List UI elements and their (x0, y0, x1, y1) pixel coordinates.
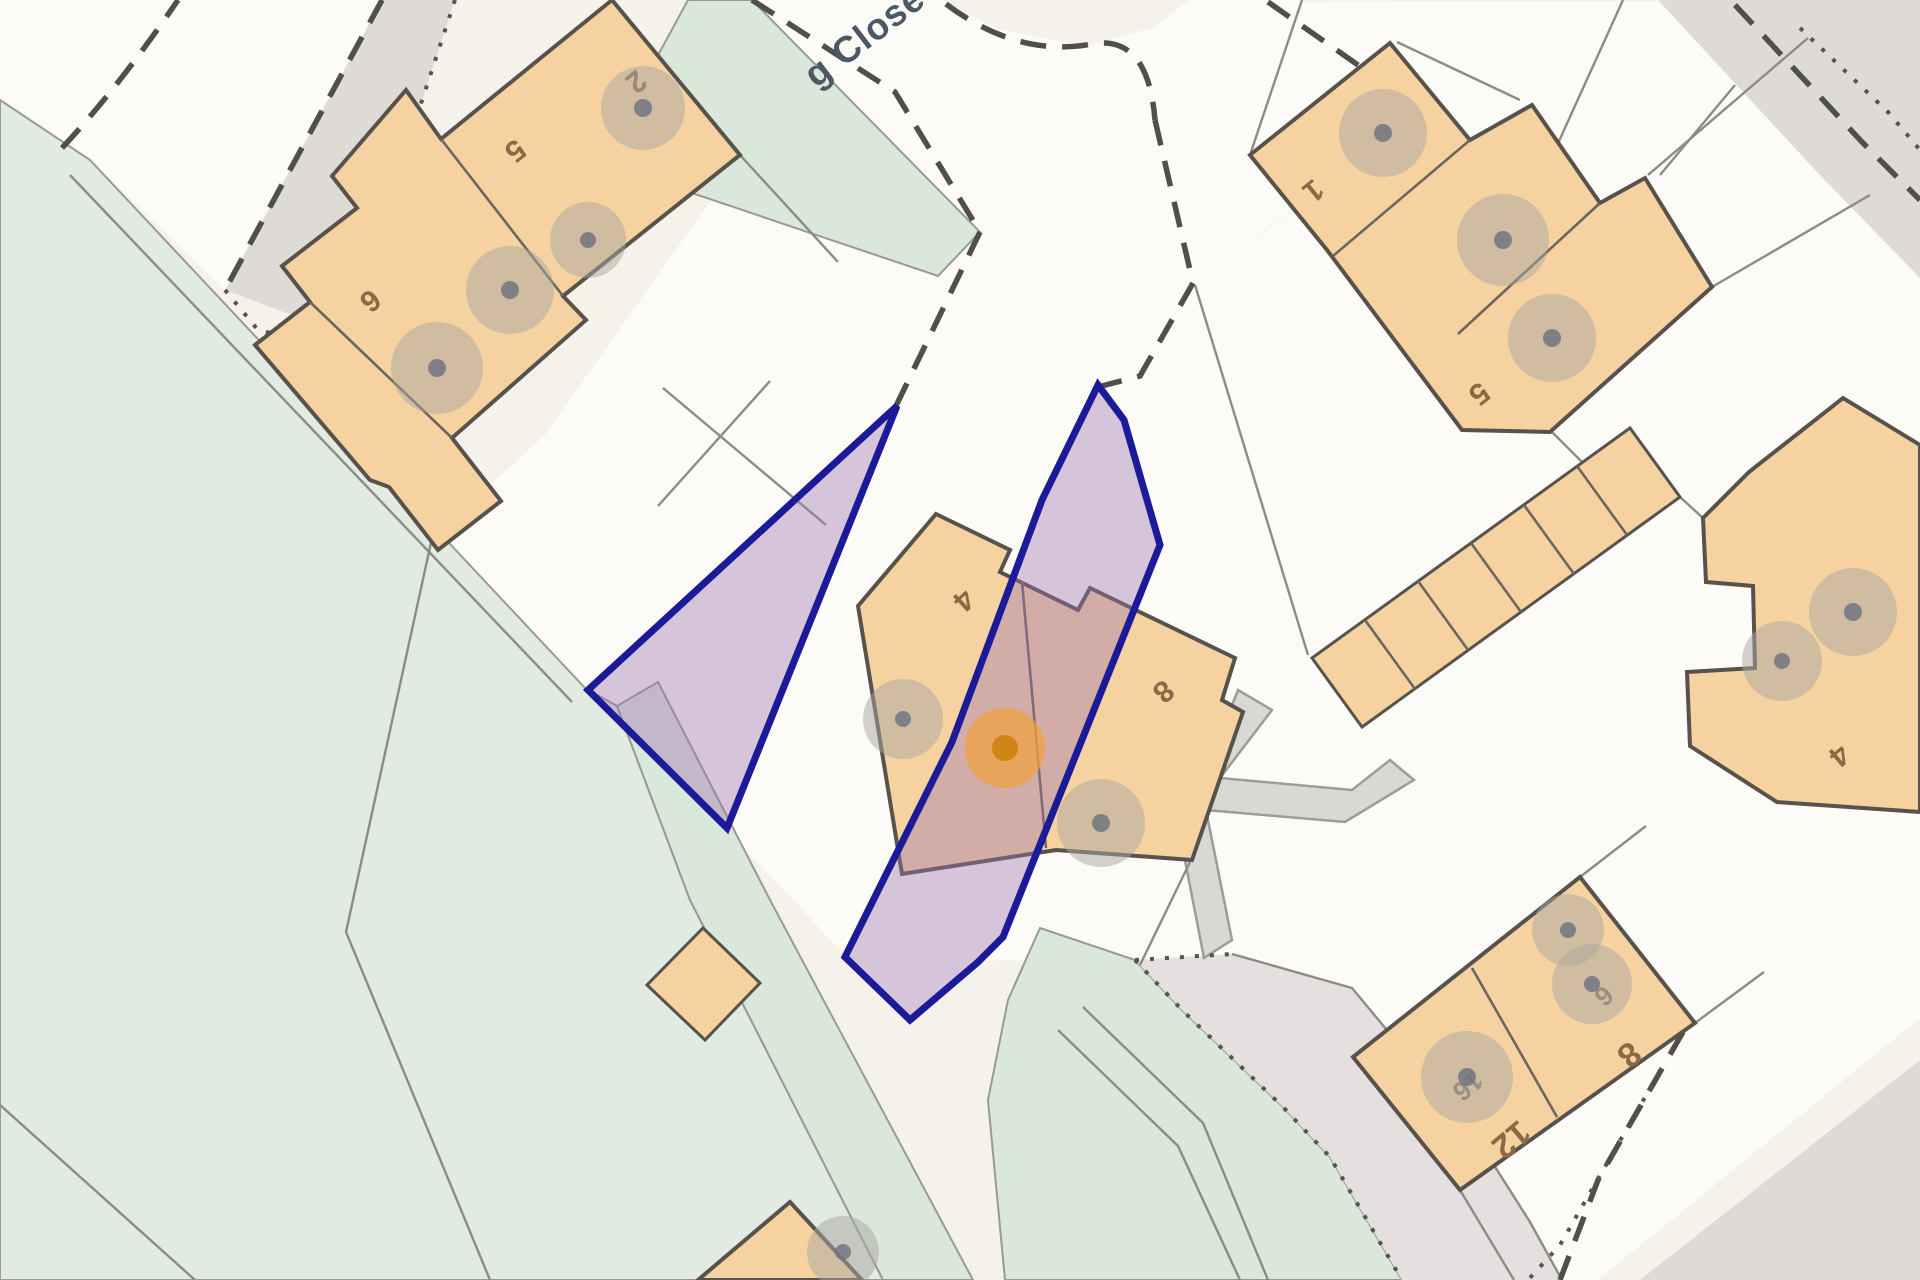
map-canvas[interactable]: 2 5 6 1 5 4 8 4 12 8 6 16 (0, 0, 1920, 1280)
map-viewport: 2 5 6 1 5 4 8 4 12 8 6 16 (0, 0, 1920, 1280)
tree-icon (601, 66, 685, 150)
tree-icon (466, 246, 554, 334)
tree-icon (1421, 1031, 1513, 1123)
tree-icon (1809, 568, 1897, 656)
tree-icon (1339, 89, 1427, 177)
tree-icon (550, 202, 626, 278)
tree-icon (1552, 944, 1632, 1024)
property-marker-icon[interactable] (965, 708, 1045, 788)
tree-icon (863, 679, 943, 759)
tree-icon (1742, 621, 1822, 701)
tree-icon (1508, 294, 1596, 382)
tree-icon (1457, 194, 1549, 286)
tree-icon (391, 322, 483, 414)
tree-icon (1057, 779, 1145, 867)
